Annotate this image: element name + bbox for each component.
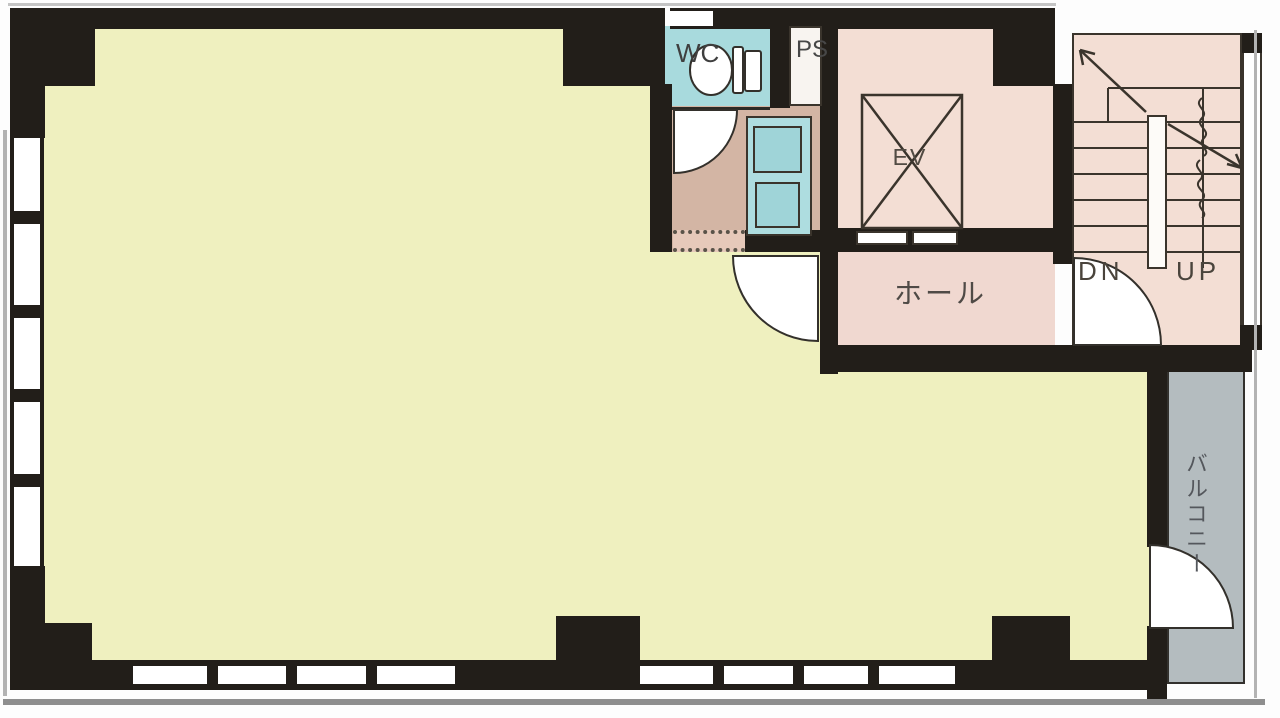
hall-door <box>733 256 818 341</box>
ps-label: PS <box>796 34 809 66</box>
plan-linework <box>0 0 1280 718</box>
frame-line-left <box>3 130 7 696</box>
balcony-label: バルコニー <box>1184 452 1206 637</box>
wc-door <box>674 110 737 173</box>
ev-label: EV <box>880 146 940 169</box>
wc-label: WC <box>676 36 690 70</box>
frame-line-right <box>1254 30 1257 698</box>
floor-plan: WC PS EV ホール DN UP バルコニー <box>0 0 1280 718</box>
hall-label: ホール <box>858 280 1023 308</box>
frame-line-top <box>8 3 1056 6</box>
stairs-down-label: DN <box>1078 258 1124 284</box>
stairs-up-label: UP <box>1176 258 1220 284</box>
stair-center-divider <box>1148 116 1166 268</box>
frame-line-bottom <box>3 699 1265 705</box>
